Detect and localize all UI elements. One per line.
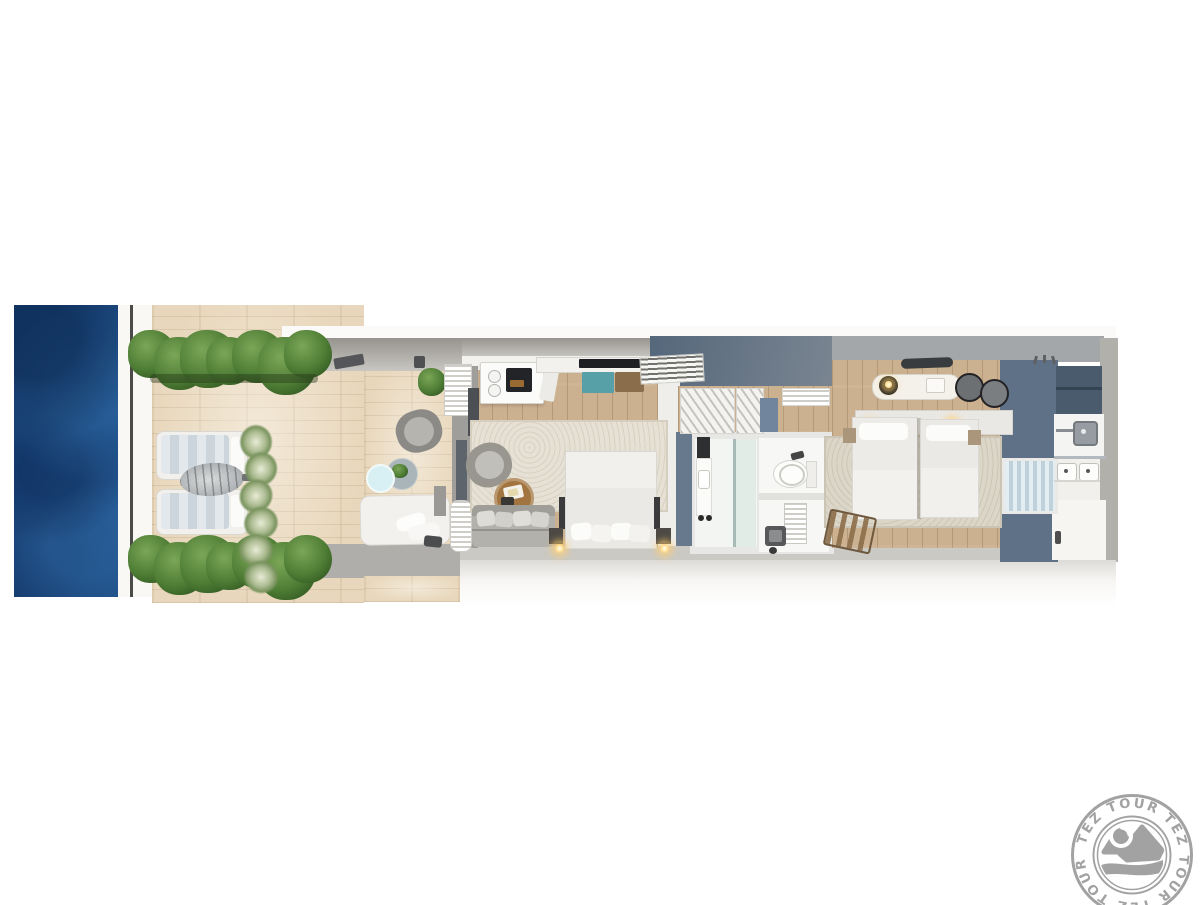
toilet-seat — [779, 464, 805, 486]
nightstand-right — [656, 528, 671, 544]
bedside-lamp-glow-right — [659, 543, 670, 554]
bed-pillow-2 — [590, 524, 612, 542]
sliding-door-glass-lower — [456, 440, 467, 502]
sofa-seat-gap — [472, 529, 555, 531]
coffee-machine-detail — [510, 380, 524, 387]
twin-bed-right-sheet — [921, 468, 978, 517]
balcony-potted-plant — [418, 368, 446, 396]
hedge-bush — [284, 330, 332, 378]
console-stool-2 — [980, 379, 1009, 408]
bed-pillow-1 — [570, 522, 592, 541]
shower-arm — [1056, 429, 1073, 432]
sun-lounger-2-mattress — [161, 493, 229, 529]
wardrobe-louver-1 — [680, 388, 735, 434]
bedroom-nightstand-b — [968, 430, 981, 445]
building-apron — [460, 560, 1116, 606]
swivel-armchair-cushion — [475, 451, 504, 479]
curtain-stack-bottom — [450, 500, 472, 552]
ac-vent — [639, 353, 704, 384]
travertine-south-strip — [364, 576, 464, 602]
coffee-cup-1 — [488, 370, 501, 383]
livingroom-top-wall — [462, 338, 658, 357]
hedge-planter-shadow — [150, 374, 318, 383]
closet-shelf-line — [1056, 387, 1102, 390]
twin-bed-right-pillow — [926, 425, 971, 441]
tez-tour-emblem-icon — [1099, 826, 1163, 876]
bathroom-spotlight-1 — [698, 515, 704, 521]
twin-bed-left-pillow — [859, 423, 908, 440]
tez-tour-watermark: TEZ TOUR TEZ TOUR TEZ TOUR — [1057, 780, 1200, 905]
chaise-dark-tray — [423, 535, 442, 548]
ensuite-sink-left-drain — [1064, 469, 1068, 473]
sofa-pillow-3 — [512, 510, 531, 526]
console-tray — [926, 378, 945, 393]
ensuite-shower-glass — [1054, 456, 1106, 459]
rain-shower-head — [1073, 421, 1098, 446]
shower-glass-tint — [736, 439, 756, 547]
hedge-row-bottom — [130, 537, 326, 595]
mid-blue-wall-strip — [676, 432, 692, 546]
bedroom-top-wall — [832, 336, 1104, 362]
wc2-sprayer — [769, 547, 777, 554]
toilet2-lid — [769, 530, 782, 542]
bathroom-dark-cabinet — [697, 437, 710, 458]
interior-window-blind — [1002, 458, 1058, 514]
bathroom-sink — [698, 470, 710, 489]
double-bed-sheet — [566, 452, 656, 488]
ensuite-vanity-edge — [1054, 480, 1100, 482]
tv-bedroom — [901, 357, 953, 369]
floor-plan-canvas: TEZ TOUR TEZ TOUR TEZ TOUR — [0, 0, 1200, 905]
tv-livingroom — [579, 359, 641, 368]
ornamental-grasses — [240, 426, 278, 598]
swimming-pool — [14, 305, 118, 597]
console-lamp-glow — [884, 380, 893, 389]
wc-divider-wall — [759, 493, 829, 500]
sofa-pillow-2 — [494, 511, 513, 528]
ensuite-sink-right-drain — [1086, 469, 1090, 473]
ensuite-door-handle — [1055, 531, 1061, 544]
ensuite-closet-dark — [1056, 366, 1102, 414]
bathroom-spotlight-2 — [706, 515, 712, 521]
floor-lamp-right — [654, 497, 660, 529]
slatted-luggage-bench — [782, 388, 830, 406]
bed-pillow-4 — [628, 524, 650, 543]
balcony-column — [434, 486, 446, 516]
sofa-pillow-4 — [530, 511, 549, 528]
wardrobe-blue-box — [760, 398, 778, 432]
bedside-lamp-glow-left — [554, 543, 565, 554]
sofa-pillow-1 — [476, 510, 496, 527]
hedge-bush — [284, 535, 332, 583]
ensuite-floor — [1052, 500, 1106, 560]
floor-lamp-left — [559, 497, 565, 529]
ceiling-mark-2 — [1043, 355, 1046, 363]
balcony-wall-lamp — [414, 356, 425, 368]
side-table-cyan — [366, 464, 395, 493]
twin-bed-left-sheet — [853, 470, 917, 519]
bedroom-nightstand-a — [843, 428, 856, 443]
towel-radiator — [784, 503, 807, 544]
coffee-cup-2 — [488, 384, 501, 397]
nightstand-left — [549, 528, 563, 544]
desk-teal — [582, 372, 614, 393]
rain-shower-head-dot — [1081, 429, 1086, 434]
